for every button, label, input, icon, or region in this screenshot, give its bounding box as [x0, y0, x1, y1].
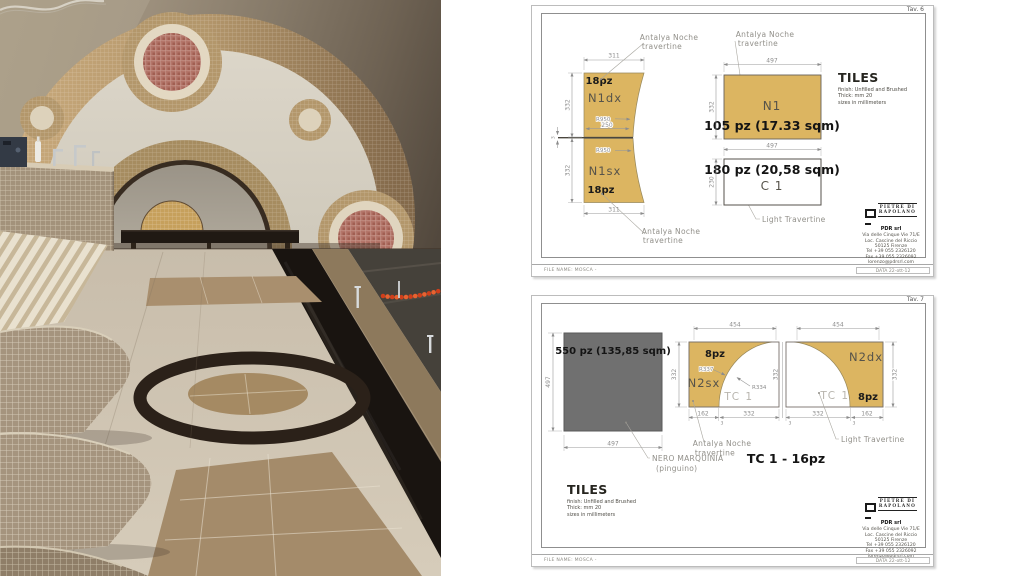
n1-rectangle: N1 105 pz (17.33 sqm) 497 332: [704, 58, 840, 140]
dim-label: 497: [766, 58, 778, 65]
drawing-sheet-tav7: Tav. 7 550 pz (135,85 sqm) 497 497 NERO …: [531, 295, 934, 567]
logo-mark-icon: [865, 497, 876, 519]
dim-label: 497: [545, 376, 552, 388]
company-address: Via delle Cinque Vie 71/E Loc. Cascine d…: [848, 233, 934, 265]
dim-label: 250: [601, 122, 613, 129]
dim-label: 3: [721, 421, 724, 427]
material-callout: travertine: [642, 42, 682, 51]
dim-label: 3: [853, 421, 856, 427]
dim-label: 332: [892, 369, 899, 381]
tiles-title: TILES: [838, 72, 907, 85]
dim-label: 454: [832, 322, 844, 329]
file-name: FILE NAME: MOSCA -: [544, 558, 597, 563]
company-logo-block: PIETRE DI RAPOLANO PDR srl Via delle Cin…: [848, 203, 934, 266]
material-callout: Antalya Noche: [693, 439, 752, 448]
date-box: DATA 22-ott-12: [856, 557, 930, 564]
company-name: PDR srl: [848, 520, 934, 526]
piece-name: N2dx: [849, 350, 883, 364]
spa-photo: [0, 0, 441, 576]
tiles-spec-block: TILES finish: Unfilled and Brushed Thick…: [838, 72, 907, 106]
title-bar: FILE NAME: MOSCA - DATA 22-ott-12: [532, 554, 933, 566]
tiles-finish: finish: Unfilled and Brushed: [838, 88, 907, 93]
radius-label: R950: [596, 148, 611, 154]
brand-name: RAPOLANO: [879, 504, 916, 509]
piece-name: C 1: [761, 179, 784, 193]
spa-photo-art: [0, 0, 441, 576]
material-callout: Antalya Noche: [642, 227, 701, 236]
file-name: FILE NAME: MOSCA -: [544, 268, 597, 273]
dim-label: 162: [697, 411, 709, 418]
dim-label: 497: [766, 143, 778, 150]
date-box: DATA 22-ott-12: [856, 267, 930, 274]
pieces-count: 550 pz (135,85 sqm): [555, 346, 671, 357]
dim-label: 332: [812, 411, 824, 418]
logo-mark-icon: [865, 203, 876, 225]
pieces-count: 18pz: [586, 76, 613, 87]
material-callout: travertine: [738, 39, 778, 48]
dim-label: 162: [861, 411, 873, 418]
tiles-units: sizes in millimeters: [567, 513, 636, 518]
material-callout: (pinguino): [656, 464, 697, 473]
tiles-thickness: Thick: mm 20: [838, 94, 907, 99]
pieces-count: 8pz: [705, 349, 725, 360]
dim-label: 332: [773, 369, 780, 381]
dim-label: 332: [565, 99, 572, 111]
dim-label: 454: [729, 322, 741, 329]
material-callout: Antalya Noche: [640, 33, 699, 42]
tiles-finish: finish: Unfilled and Brushed: [567, 500, 636, 505]
material-callout: Light Travertine: [762, 215, 826, 224]
pieces-count: 105 pz (17.33 sqm): [704, 118, 840, 133]
dim-label: 332: [743, 411, 755, 418]
tc-total-label: TC 1 - 16pz: [747, 451, 825, 466]
piece-name: TC 1: [819, 390, 849, 402]
floor-tan-band: [146, 276, 322, 306]
tiles-thickness: Thick: mm 20: [567, 506, 636, 511]
dim-label: 3: [789, 421, 792, 427]
material-callout: travertine: [695, 449, 735, 458]
company-logo-block: PIETRE DI RAPOLANO PDR srl Via delle Cin…: [848, 497, 934, 560]
radius-label: R334: [752, 385, 767, 391]
tiles-units: sizes in millimeters: [838, 101, 907, 106]
pieces-count: 180 pz (20,58 sqm): [704, 162, 840, 177]
piece-name: TC 1: [723, 391, 753, 403]
drawing-sheet-tav6: Tav. 6 311 311: [531, 5, 934, 277]
company-name: PDR srl: [848, 226, 934, 232]
piece-name: N1: [763, 99, 782, 113]
c1-rectangle: 180 pz (20,58 sqm) C 1 497 230: [704, 143, 840, 206]
material-callout: Antalya Noche: [736, 30, 795, 39]
tiles-spec-block: TILES finish: Unfilled and Brushed Thick…: [567, 484, 636, 518]
title-bar: FILE NAME: MOSCA - DATA 22-ott-12: [532, 264, 933, 276]
dim-label: 311: [608, 53, 620, 60]
material-callout: Light Travertine: [841, 435, 905, 444]
page: Tav. 6 311 311: [0, 0, 1024, 576]
dim-label: 230: [709, 176, 716, 188]
dim-label: 311: [608, 207, 620, 214]
radius-label: R337: [699, 367, 714, 373]
piece-name: N2sx: [688, 376, 721, 390]
dim-label: 332: [671, 369, 678, 381]
tiles-title: TILES: [567, 484, 636, 497]
dim-label: 497: [607, 441, 619, 448]
pieces-count: 18pz: [588, 185, 615, 196]
pieces-count: 8pz: [858, 392, 878, 403]
material-callout: travertine: [643, 236, 683, 245]
piece-name: N1sx: [589, 164, 622, 178]
piece-name: N1dx: [588, 91, 622, 105]
brand-name: RAPOLANO: [879, 210, 916, 215]
dim-label: 332: [709, 101, 716, 113]
dim-label: 3: [551, 136, 557, 139]
dim-label: 332: [565, 165, 572, 177]
